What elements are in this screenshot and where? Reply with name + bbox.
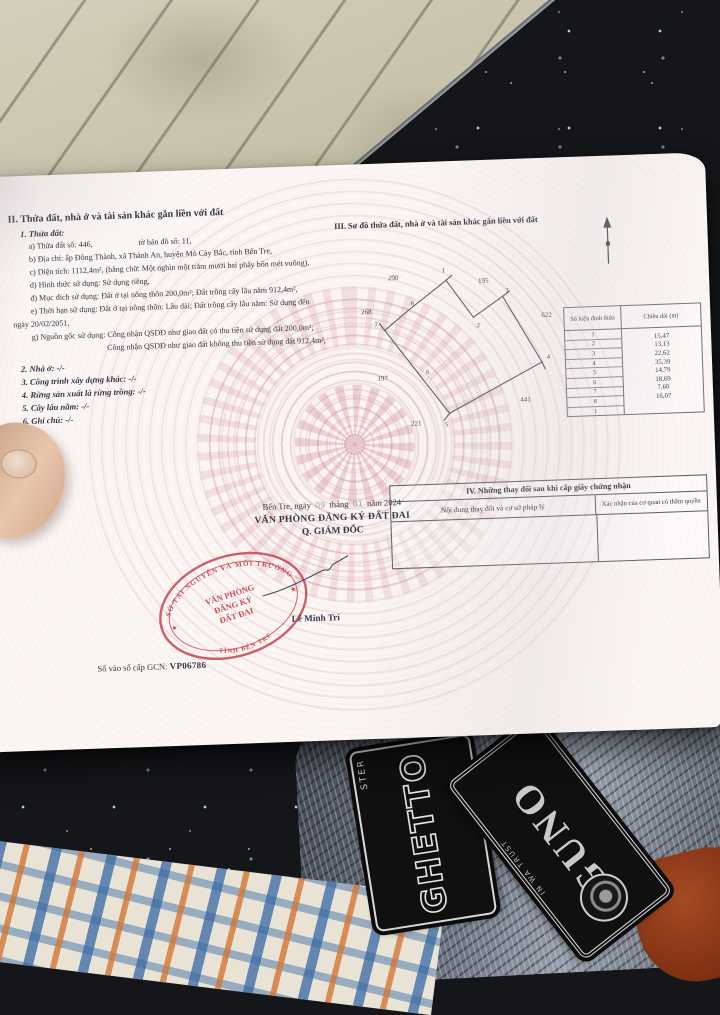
edge-table-header-length: Chiều dài (m) — [621, 303, 701, 329]
neighbor-parcel-label: 290 — [388, 274, 399, 282]
serial-number: VP06786 — [170, 660, 207, 671]
handwritten-month: 01 — [351, 499, 365, 508]
north-arrow-icon — [596, 215, 620, 268]
land-certificate-page: II. Thửa đất, nhà ở và tài sản khác gắn … — [0, 152, 720, 753]
vertex-label: 2 — [477, 322, 480, 329]
edge-length: 16,07 — [624, 391, 703, 402]
handwritten-day: 09 — [313, 501, 327, 510]
official-red-seal: SỞ TÀI NGUYÊN VÀ MÔI TRƯỜNG TỈNH BẾN TRE… — [140, 529, 326, 683]
ghetto-patch-subtext: STER — [356, 758, 371, 790]
signature-stroke — [258, 553, 360, 602]
vertex-label: 6 — [426, 369, 430, 376]
neighbor-parcel-label: 221 — [411, 419, 422, 427]
month-word: tháng — [329, 499, 348, 510]
stamp-star-left: ★ — [170, 623, 178, 633]
parcel-sketch-diagram: 1 2 3 4 5 6 7 8 290 195 268 622 197 441 … — [343, 251, 589, 449]
changes-col-authority: Xác nhận của cơ quan có thẩm quyền — [595, 491, 707, 514]
neighbor-parcel-label: 441 — [520, 395, 531, 403]
section-3-heading: III. Sơ đồ thửa đất, nhà ở và tài sản kh… — [334, 215, 538, 231]
vertex-label: 7 — [374, 322, 378, 329]
neighbor-parcel-label: 195 — [478, 277, 489, 285]
place-date-prefix: Bến Tre, ngày — [262, 500, 311, 512]
neighbor-parcel-label: 268 — [361, 308, 372, 316]
vertex-label: 3 — [505, 287, 508, 294]
ghetto-patch-text: GHETTO — [391, 749, 455, 916]
vertex-label: 8 — [411, 300, 414, 307]
thumb-nail — [0, 449, 37, 479]
edge-table-header-vertex: Số hiệu đỉnh thửa — [564, 306, 621, 331]
vertex-label: 4 — [547, 354, 551, 361]
vertex-label: 1 — [442, 267, 445, 274]
vertex-row: 1 — [568, 406, 624, 417]
neighbor-parcel-label: 622 — [541, 311, 552, 319]
vertex-label: 5 — [445, 421, 448, 428]
neighbor-parcel-label: 197 — [377, 374, 388, 382]
serial-label: Số vào sổ cấp GCN: — [97, 661, 167, 673]
year-text: năm 2024 — [367, 497, 401, 508]
section-2-parcel-info: II. Thửa đất, nhà ở và tài sản khác gắn … — [7, 202, 370, 428]
edge-length-table: Số hiệu đỉnh thửa 1 2 3 4 5 6 7 8 1 Chiề… — [563, 302, 705, 417]
